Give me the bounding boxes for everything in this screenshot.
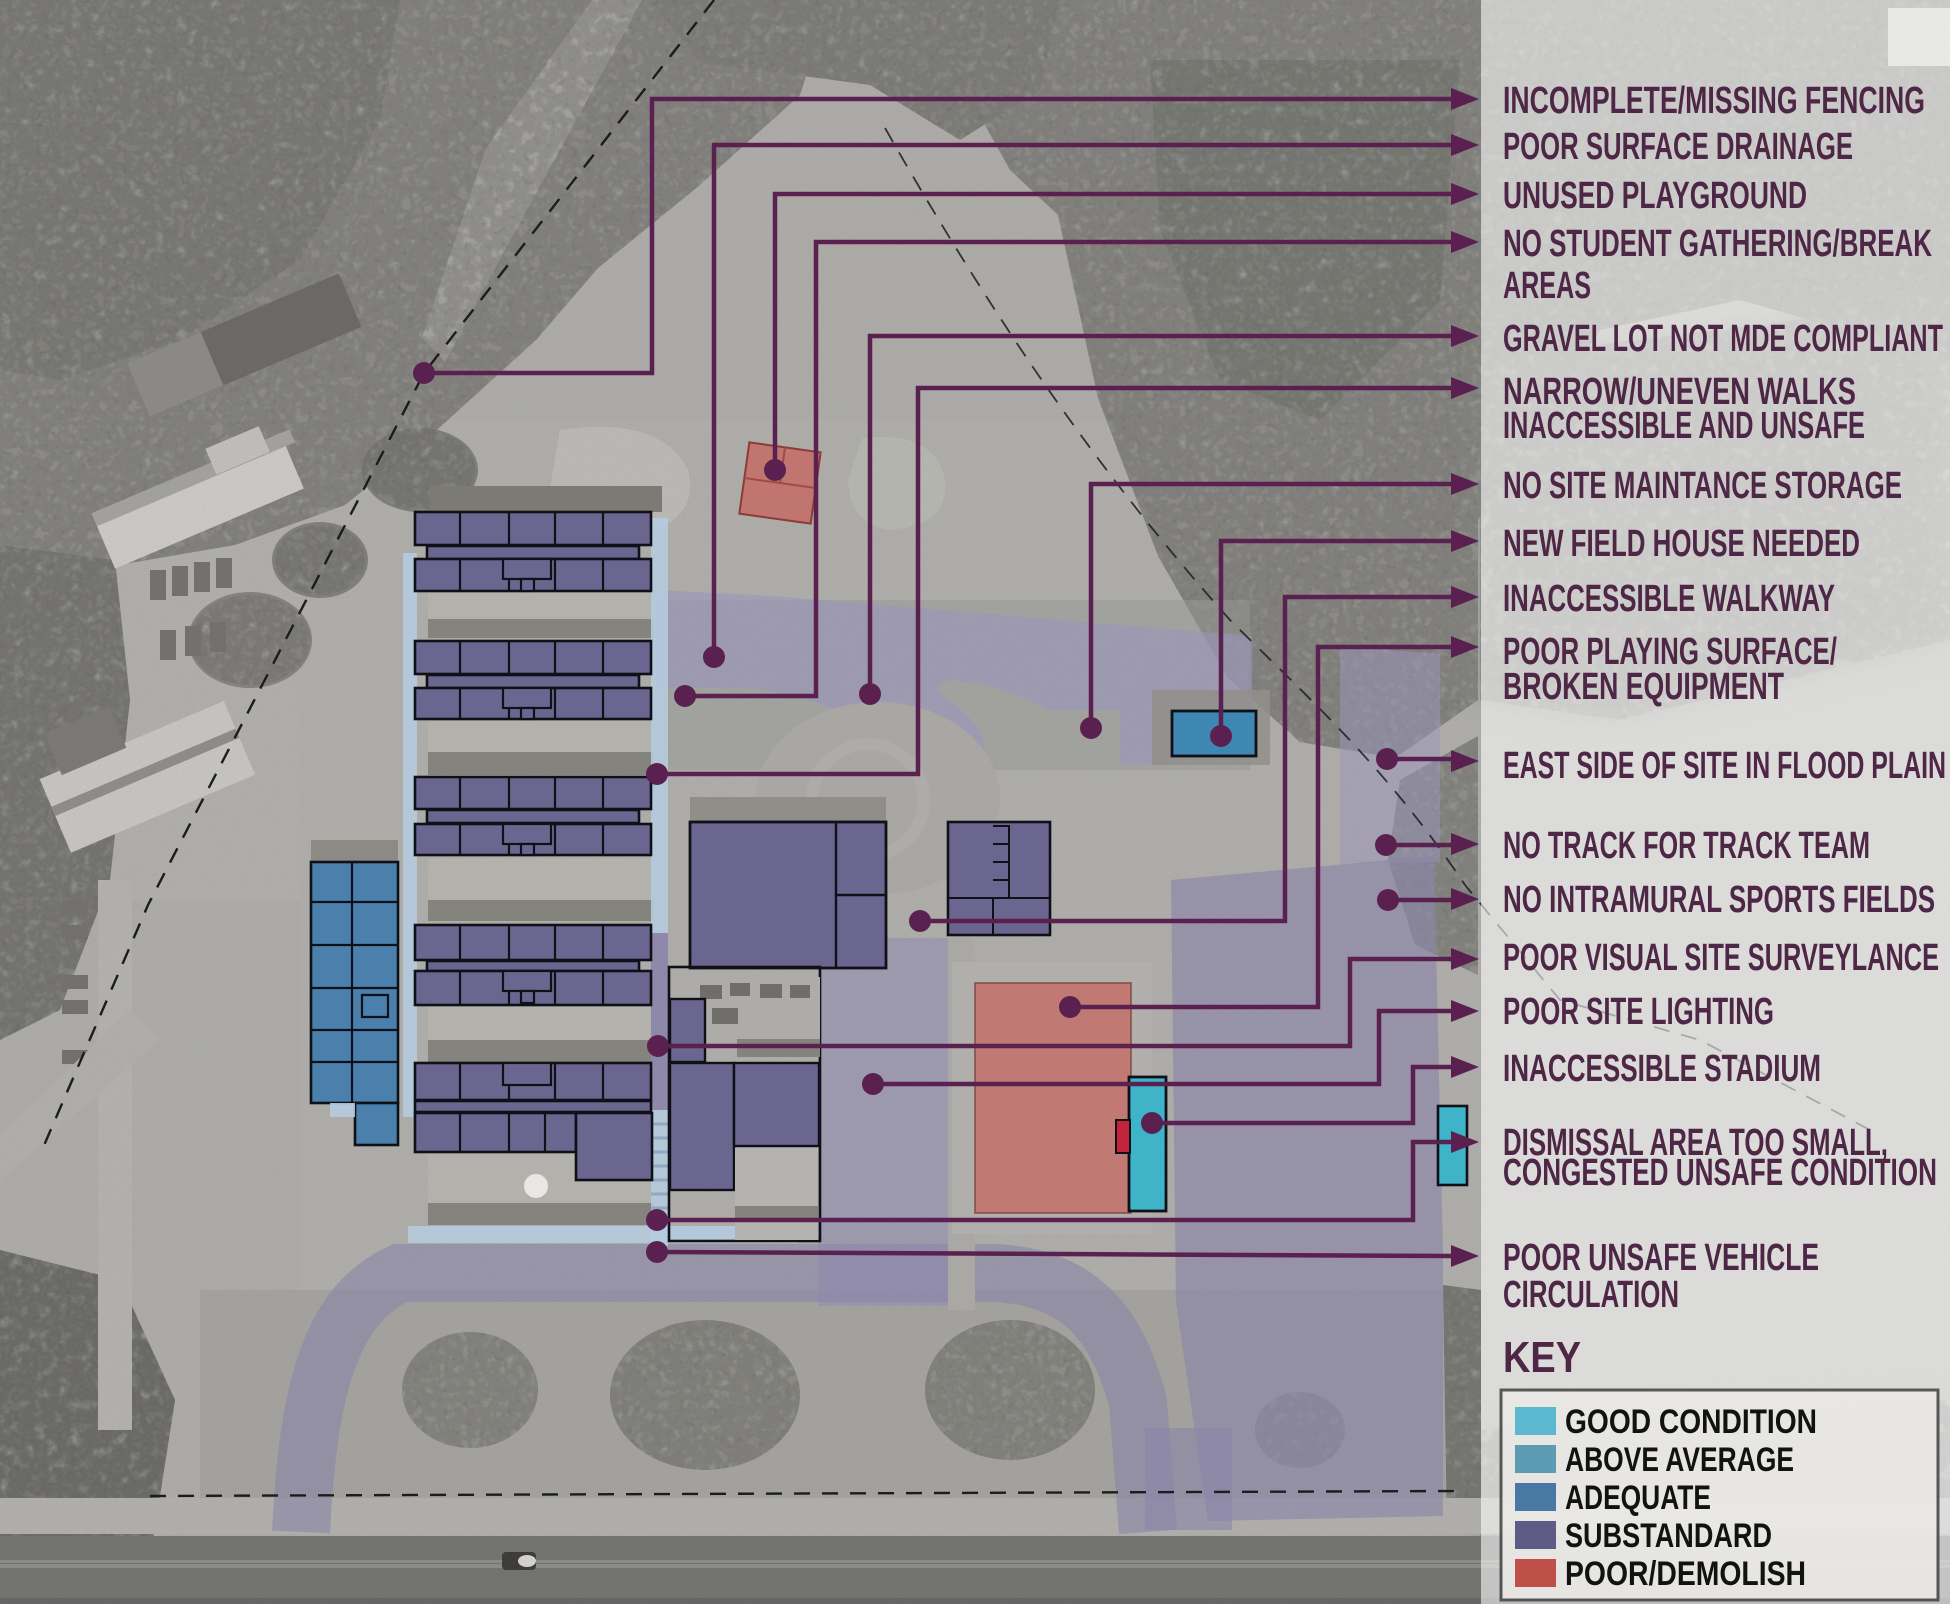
svg-text:UNUSED PLAYGROUND: UNUSED PLAYGROUND xyxy=(1503,175,1807,217)
svg-text:BROKEN EQUIPMENT: BROKEN EQUIPMENT xyxy=(1503,666,1784,708)
svg-text:ADEQUATE: ADEQUATE xyxy=(1565,1479,1711,1517)
svg-text:GRAVEL LOT NOT MDE COMPLIANT: GRAVEL LOT NOT MDE COMPLIANT xyxy=(1503,318,1943,360)
svg-text:CONGESTED UNSAFE CONDITION: CONGESTED UNSAFE CONDITION xyxy=(1503,1152,1937,1194)
svg-text:GOOD CONDITION: GOOD CONDITION xyxy=(1565,1403,1817,1441)
svg-text:INACCESSIBLE STADIUM: INACCESSIBLE STADIUM xyxy=(1503,1048,1821,1090)
svg-text:POOR VISUAL SITE SURVEYLANCE: POOR VISUAL SITE SURVEYLANCE xyxy=(1503,937,1939,979)
svg-text:NO STUDENT GATHERING/BREAK: NO STUDENT GATHERING/BREAK xyxy=(1503,223,1932,265)
svg-text:NEW FIELD HOUSE NEEDED: NEW FIELD HOUSE NEEDED xyxy=(1503,523,1860,565)
svg-text:INACCESSIBLE WALKWAY: INACCESSIBLE WALKWAY xyxy=(1503,578,1835,620)
svg-text:CIRCULATION: CIRCULATION xyxy=(1503,1274,1679,1316)
svg-text:AREAS: AREAS xyxy=(1503,265,1591,307)
svg-text:NO TRACK FOR TRACK TEAM: NO TRACK FOR TRACK TEAM xyxy=(1503,825,1870,867)
svg-text:ABOVE AVERAGE: ABOVE AVERAGE xyxy=(1565,1441,1794,1479)
svg-text:POOR/DEMOLISH: POOR/DEMOLISH xyxy=(1565,1555,1806,1593)
svg-text:KEY: KEY xyxy=(1503,1333,1581,1382)
svg-text:SUBSTANDARD: SUBSTANDARD xyxy=(1565,1517,1772,1555)
svg-text:EAST SIDE OF SITE IN FLOOD PLA: EAST SIDE OF SITE IN FLOOD PLAIN xyxy=(1503,745,1946,787)
svg-text:NO SITE MAINTANCE STORAGE: NO SITE MAINTANCE STORAGE xyxy=(1503,465,1902,507)
svg-text:POOR UNSAFE VEHICLE: POOR UNSAFE VEHICLE xyxy=(1503,1237,1819,1279)
svg-text:POOR SITE LIGHTING: POOR SITE LIGHTING xyxy=(1503,991,1774,1033)
svg-text:POOR SURFACE DRAINAGE: POOR SURFACE DRAINAGE xyxy=(1503,126,1853,168)
svg-text:INCOMPLETE/MISSING FENCING: INCOMPLETE/MISSING FENCING xyxy=(1503,80,1925,122)
svg-text:NO INTRAMURAL SPORTS FIELDS: NO INTRAMURAL SPORTS FIELDS xyxy=(1503,879,1935,921)
svg-text:INACCESSIBLE AND UNSAFE: INACCESSIBLE AND UNSAFE xyxy=(1503,405,1865,447)
